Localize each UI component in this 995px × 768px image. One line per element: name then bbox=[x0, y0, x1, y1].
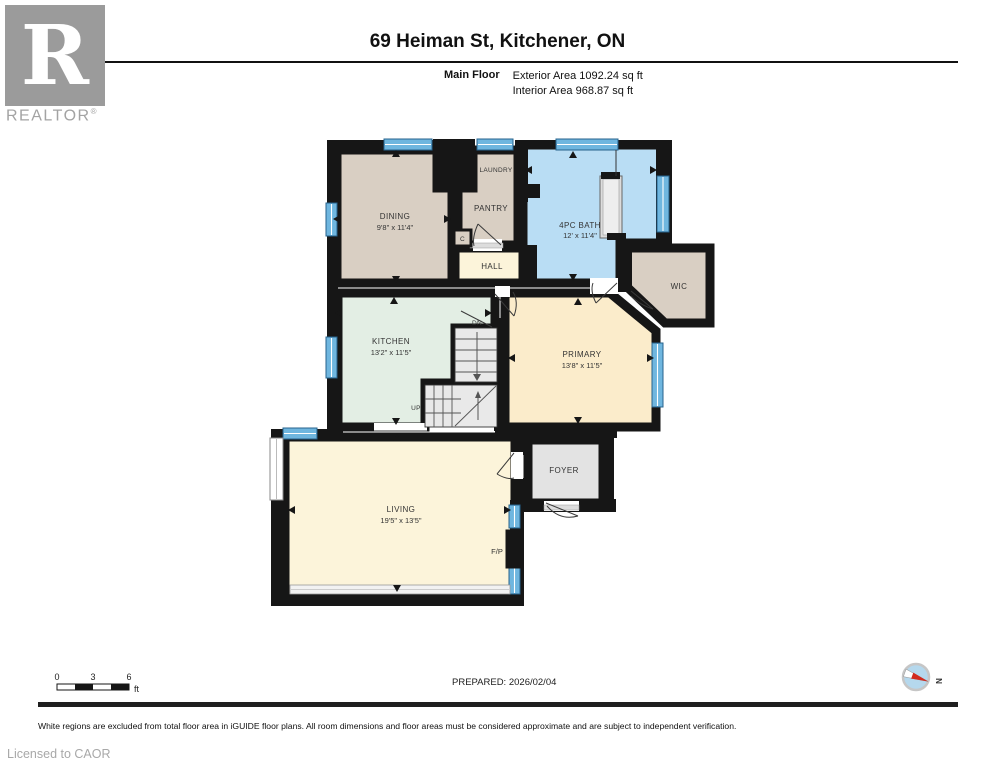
floor-plan-drawing: DINING 9'8" x 11'4" LAUNDRY PANTRY C HAL… bbox=[0, 0, 995, 768]
primary-dims: 13'8" x 11'5" bbox=[562, 361, 603, 370]
floor-plan-page: R REALTOR® 69 Heiman St, Kitchener, ON M… bbox=[0, 0, 995, 768]
compass-north-label: N bbox=[934, 678, 943, 684]
window-dining-top bbox=[384, 139, 432, 150]
pantry-label: PANTRY bbox=[474, 204, 508, 213]
window-living-right-lower bbox=[509, 565, 520, 594]
bath-dims: 12' x 11'4" bbox=[563, 231, 597, 240]
wic-label: WIC bbox=[671, 282, 688, 291]
realtor-logo-text: REALTOR bbox=[6, 107, 91, 124]
bath-label: 4PC BATH bbox=[559, 221, 601, 230]
laundry-label: LAUNDRY bbox=[479, 167, 512, 174]
window-bath-top bbox=[556, 139, 618, 150]
window-bath-right bbox=[657, 176, 669, 232]
primary-label: PRIMARY bbox=[562, 350, 601, 359]
bay-window-living-left bbox=[270, 438, 283, 500]
dining-dims: 9'8" x 11'4" bbox=[377, 223, 414, 232]
foyer-label: FOYER bbox=[549, 466, 579, 475]
kitchen-label: KITCHEN bbox=[372, 337, 410, 346]
window-kitchen-left bbox=[326, 337, 337, 378]
header-divider-line bbox=[35, 61, 958, 63]
scale-tick-6: 6 bbox=[126, 672, 131, 682]
registered-mark: ® bbox=[91, 107, 98, 116]
realtor-logo-word: REALTOR® bbox=[6, 107, 98, 125]
stairs-down bbox=[455, 328, 497, 382]
scale-tick-3: 3 bbox=[90, 672, 95, 682]
window-living-right-upper bbox=[509, 505, 520, 528]
living-label: LIVING bbox=[387, 505, 416, 514]
realtor-logo-letter: R bbox=[21, 15, 89, 97]
stairs-dn-label: DN bbox=[472, 320, 482, 327]
closet-label: C bbox=[460, 236, 465, 243]
scale-unit: ft bbox=[134, 684, 140, 694]
window-living-top bbox=[283, 428, 317, 439]
scale-tick-0: 0 bbox=[54, 672, 59, 682]
room-primary-floor bbox=[505, 293, 656, 427]
kitchen-dims: 13'2" x 11'5" bbox=[371, 348, 412, 357]
realtor-logo: R bbox=[5, 5, 105, 106]
scale-bar: 0 3 6 ft bbox=[54, 672, 139, 694]
window-primary-right bbox=[652, 343, 663, 407]
living-dims: 19'5" x 13'5" bbox=[380, 516, 421, 525]
compass-icon: N bbox=[903, 664, 943, 690]
window-laundry-top bbox=[477, 139, 513, 150]
stairs-up bbox=[425, 385, 497, 427]
dining-label: DINING bbox=[380, 212, 410, 221]
hall-label: HALL bbox=[481, 262, 503, 271]
stairs-up-label: UP bbox=[411, 405, 421, 412]
fireplace-label: F/P bbox=[491, 547, 503, 556]
